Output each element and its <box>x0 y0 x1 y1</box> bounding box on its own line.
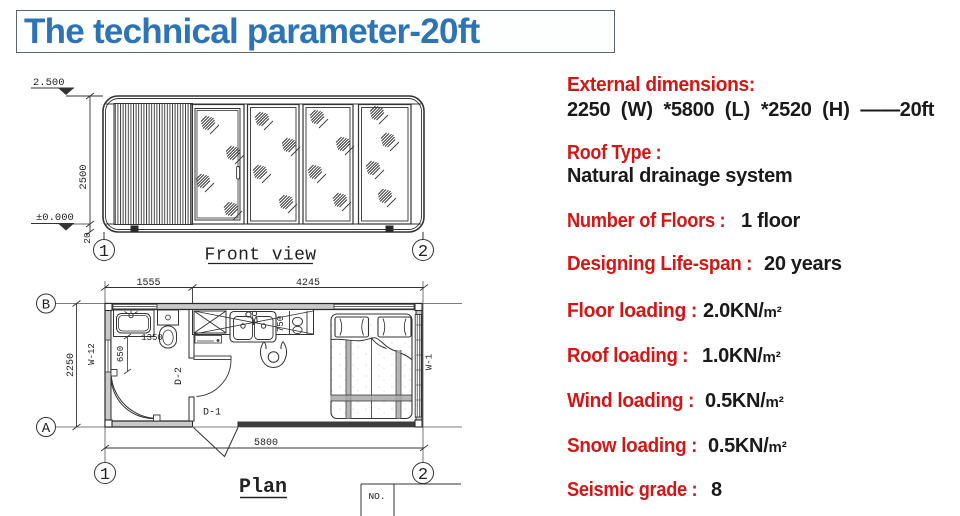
svg-text:D-2: D-2 <box>174 367 185 385</box>
svg-text:W-1: W-1 <box>425 354 435 370</box>
svg-text:2.500: 2.500 <box>33 77 65 89</box>
svg-text:A: A <box>42 421 51 437</box>
svg-text:Plan: Plan <box>239 476 287 499</box>
svg-text:1: 1 <box>100 466 110 485</box>
svg-text:4245: 4245 <box>296 278 320 289</box>
svg-text:2250: 2250 <box>66 353 77 377</box>
svg-text:1: 1 <box>99 243 109 262</box>
svg-text:5800: 5800 <box>254 438 278 449</box>
svg-text:750: 750 <box>276 316 286 332</box>
svg-text:D-1: D-1 <box>203 408 221 419</box>
svg-text:2500: 2500 <box>78 164 90 189</box>
svg-text:2: 2 <box>418 243 428 262</box>
svg-text:Front view: Front view <box>204 246 316 266</box>
svg-text:H: H <box>132 227 136 234</box>
svg-text:650: 650 <box>116 346 126 362</box>
svg-text:20: 20 <box>82 232 93 244</box>
svg-text:2: 2 <box>418 466 428 485</box>
svg-text:H: H <box>387 227 391 234</box>
svg-text:B: B <box>42 298 50 314</box>
svg-text:1350: 1350 <box>141 333 163 343</box>
svg-text:NO.: NO. <box>368 491 385 502</box>
svg-text:W-12: W-12 <box>87 343 97 365</box>
svg-text:1555: 1555 <box>136 278 160 289</box>
svg-text:±0.000: ±0.000 <box>36 212 74 224</box>
